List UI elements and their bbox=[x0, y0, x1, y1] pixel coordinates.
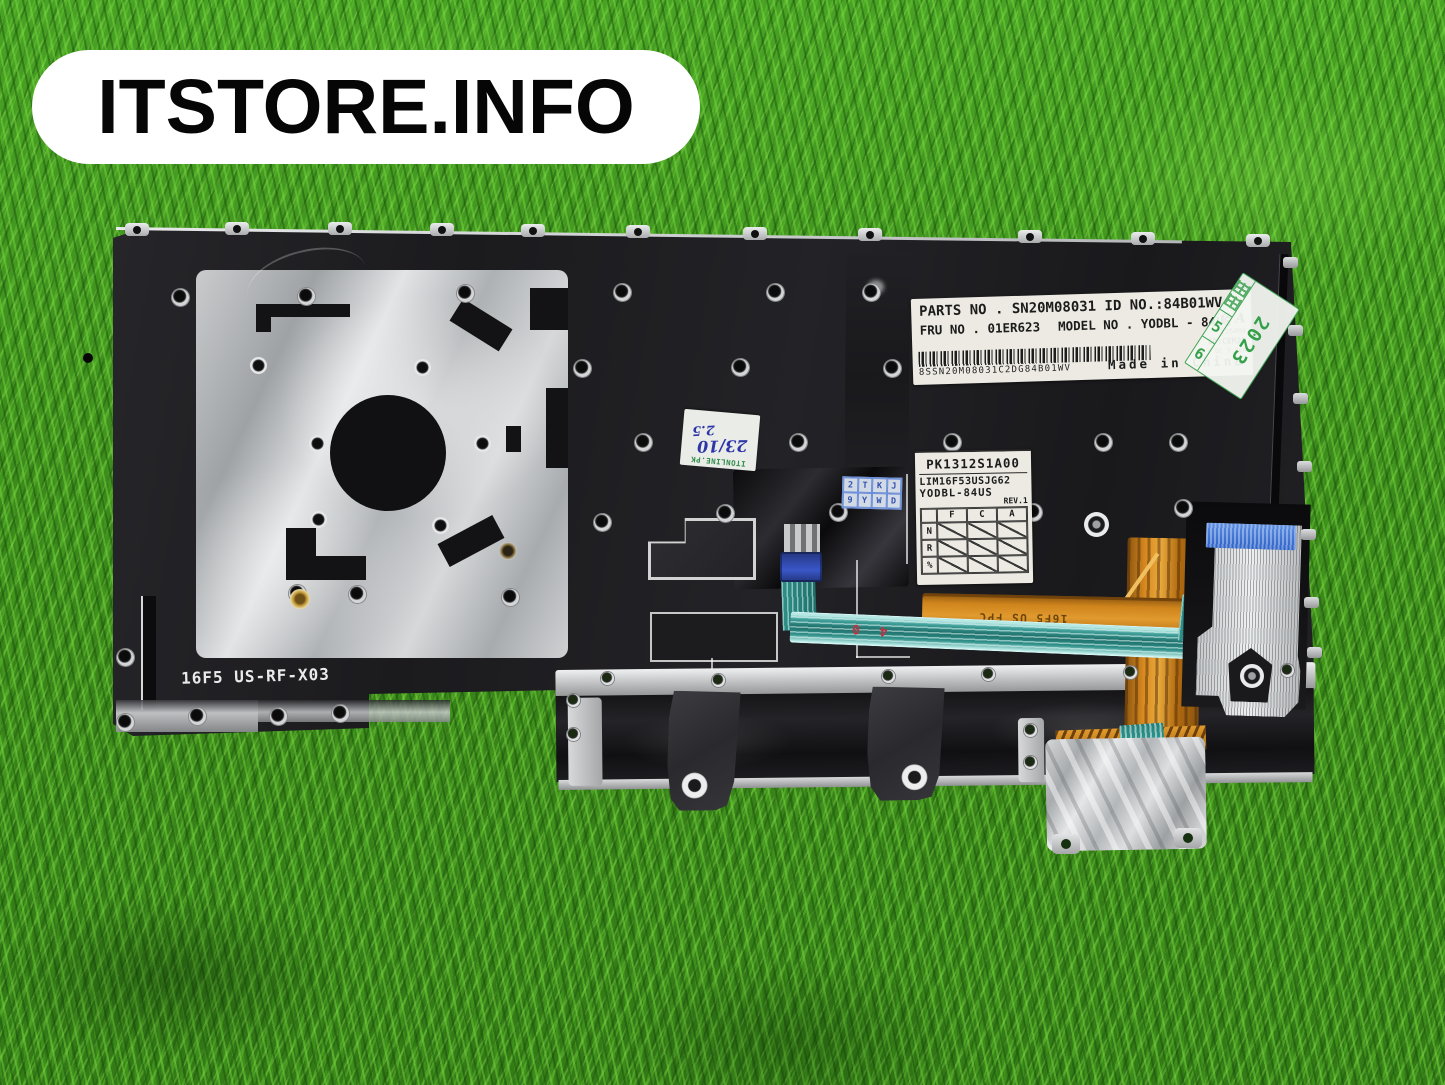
top-mount-tab bbox=[225, 222, 249, 235]
fru-no: FRU NO . 01ER623 bbox=[920, 319, 1041, 338]
spec-cell bbox=[997, 521, 1027, 539]
spec-cell bbox=[998, 555, 1028, 573]
plate-dark-hole bbox=[83, 353, 93, 363]
screw-hole bbox=[189, 708, 206, 725]
qc-char: W bbox=[872, 493, 887, 508]
tab-hole bbox=[133, 226, 141, 234]
brass-rivet bbox=[290, 589, 310, 609]
shield-rivet bbox=[309, 435, 326, 452]
spec-cell bbox=[937, 539, 967, 557]
note-handwriting: 23/10 bbox=[685, 436, 747, 456]
spec-cell bbox=[968, 556, 998, 574]
top-mount-tab bbox=[743, 227, 767, 240]
spec-cell bbox=[938, 556, 968, 574]
right-edge-tab bbox=[1307, 647, 1322, 658]
edge-tab-hole bbox=[1281, 664, 1294, 677]
edge-tab-hole bbox=[1024, 724, 1037, 737]
screw-hole bbox=[1175, 500, 1192, 517]
spec-cell bbox=[967, 522, 997, 540]
tab-hole bbox=[529, 227, 537, 235]
top-mount-tab bbox=[521, 224, 545, 237]
photo-scene: 16F5 US-RF-X03 16F5 US FPC 4 0 PA bbox=[0, 0, 1445, 1085]
tab-hole bbox=[1139, 235, 1147, 243]
right-edge-tab bbox=[1293, 393, 1308, 404]
screw-hole bbox=[732, 359, 749, 376]
shield-rivet bbox=[414, 359, 431, 376]
top-mount-tab bbox=[626, 225, 650, 238]
shield-rivet bbox=[432, 517, 449, 534]
handwritten-note-sticker: ITONLINE.PK 23/10 2.5 bbox=[680, 409, 761, 471]
screw-hole bbox=[1095, 434, 1112, 451]
top-mount-tab bbox=[125, 223, 149, 236]
right-edge-tab bbox=[1297, 461, 1312, 472]
qc-grid-sticker: 2 T K J 9 Y W D bbox=[842, 476, 903, 510]
screw-hole bbox=[863, 284, 880, 301]
top-mount-tab bbox=[858, 228, 882, 241]
edge-tab-hole bbox=[1124, 666, 1137, 679]
shield-rivet bbox=[474, 435, 491, 452]
screw-hole bbox=[717, 505, 734, 522]
screw-hole bbox=[298, 288, 315, 305]
bronze-rivet bbox=[499, 542, 517, 560]
edge-tab-hole bbox=[567, 728, 580, 741]
date-year: 2023 bbox=[1226, 312, 1274, 369]
tab-hole bbox=[438, 226, 446, 234]
screw-hole bbox=[332, 705, 349, 722]
tab-hole bbox=[1254, 237, 1262, 245]
qc-char: T bbox=[858, 478, 873, 493]
screw-hole bbox=[574, 360, 591, 377]
shield-rivet bbox=[310, 511, 327, 528]
shield-rivet bbox=[250, 357, 267, 374]
spec-col-header: C bbox=[967, 508, 997, 523]
tab-hole bbox=[336, 225, 344, 233]
qc-char: 9 bbox=[843, 492, 858, 507]
screw-hole bbox=[502, 589, 519, 606]
spec-cell bbox=[967, 539, 997, 557]
screw-hole bbox=[1170, 434, 1187, 451]
spec-row-header: % bbox=[922, 557, 938, 574]
screw-hole bbox=[614, 284, 631, 301]
right-edge-tab bbox=[1301, 529, 1316, 540]
top-mount-tab bbox=[1246, 234, 1270, 247]
tab-hole bbox=[866, 231, 874, 239]
screw-hole bbox=[117, 714, 134, 731]
screw-hole bbox=[790, 434, 807, 451]
note-handwriting: 2.5 bbox=[686, 422, 715, 438]
edge-tab-hole bbox=[601, 672, 614, 685]
edge-tab-hole bbox=[1024, 756, 1037, 769]
tab-hole bbox=[751, 230, 759, 238]
watermark-text: ITSTORE.INFO bbox=[97, 63, 635, 152]
tab-hole bbox=[634, 228, 642, 236]
qc-char: Y bbox=[857, 493, 872, 508]
screw-hole bbox=[457, 285, 474, 302]
standoff-grommet bbox=[1084, 512, 1109, 537]
spec-part-no: PK1312S1A00 bbox=[919, 454, 1027, 475]
top-mount-tab bbox=[1018, 230, 1042, 243]
top-mount-tab bbox=[430, 223, 454, 236]
spec-row-header: R bbox=[921, 540, 937, 557]
tab-hole bbox=[1026, 233, 1034, 241]
spec-cell bbox=[997, 538, 1027, 556]
edge-tab-hole bbox=[712, 674, 725, 687]
qc-char: D bbox=[886, 493, 901, 508]
qc-char: J bbox=[886, 478, 901, 493]
top-mount-tab bbox=[1131, 232, 1155, 245]
edge-tab-hole bbox=[567, 694, 580, 707]
screw-hole bbox=[944, 434, 961, 451]
edge-tab-hole bbox=[882, 670, 895, 683]
screw-hole bbox=[767, 284, 784, 301]
spec-table: F C A N R % bbox=[920, 506, 1029, 575]
right-edge-tab bbox=[1304, 597, 1319, 608]
qc-char: 2 bbox=[843, 477, 858, 492]
watermark-pill: ITSTORE.INFO bbox=[32, 50, 700, 164]
tab-hole bbox=[233, 225, 241, 233]
top-mount-tab bbox=[328, 222, 352, 235]
screw-hole bbox=[594, 514, 611, 531]
qc-char: K bbox=[872, 478, 887, 493]
spec-col-header: A bbox=[997, 507, 1027, 522]
screw-hole bbox=[349, 586, 366, 603]
screw-hole bbox=[117, 649, 134, 666]
screw-hole bbox=[172, 289, 189, 306]
edge-tab-hole bbox=[982, 668, 995, 681]
spec-cell bbox=[937, 522, 967, 540]
screw-hole bbox=[635, 434, 652, 451]
spec-cell bbox=[921, 509, 937, 523]
spec-row-header: N bbox=[921, 523, 937, 540]
right-edge-tab bbox=[1283, 257, 1298, 268]
screw-hole bbox=[270, 708, 287, 725]
spec-label: PK1312S1A00 LIM16F53USJG62 YODBL-84US RE… bbox=[915, 449, 1033, 585]
screw-hole bbox=[884, 360, 901, 377]
spec-col-header: F bbox=[937, 508, 967, 523]
